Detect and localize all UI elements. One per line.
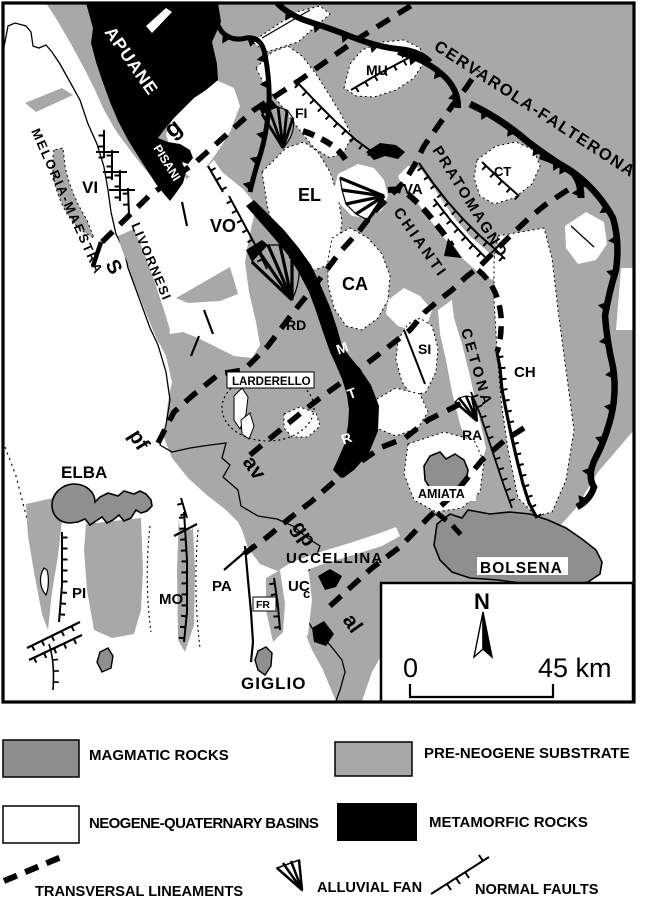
svg-text:FI: FI xyxy=(295,105,307,121)
svg-text:N: N xyxy=(474,589,490,614)
svg-text:AMIATA: AMIATA xyxy=(418,487,465,501)
svg-text:45 km: 45 km xyxy=(538,653,612,683)
svg-text:BOLSENA: BOLSENA xyxy=(480,560,563,577)
svg-text:LARDERELLO: LARDERELLO xyxy=(232,376,311,388)
svg-text:ELBA: ELBA xyxy=(61,463,107,482)
svg-text:MO: MO xyxy=(159,591,183,608)
svg-text:VA: VA xyxy=(403,181,423,198)
svg-text:CT: CT xyxy=(494,164,511,179)
svg-text:CH: CH xyxy=(514,364,536,381)
svg-text:PRE-NEOGENE SUBSTRATE: PRE-NEOGENE SUBSTRATE xyxy=(424,745,630,762)
svg-text:EL: EL xyxy=(298,185,321,205)
svg-text:PI: PI xyxy=(72,585,86,602)
svg-text:GIGLIO: GIGLIO xyxy=(241,674,307,693)
svg-text:MU: MU xyxy=(366,62,388,78)
svg-text:SI: SI xyxy=(418,341,431,357)
svg-text:CA: CA xyxy=(342,274,368,294)
svg-text:UCCELLINA: UCCELLINA xyxy=(286,550,383,567)
svg-text:c: c xyxy=(303,586,310,601)
svg-text:METAMORFIC ROCKS: METAMORFIC ROCKS xyxy=(429,814,588,831)
svg-text:PA: PA xyxy=(212,578,232,595)
svg-text:NORMAL FAULTS: NORMAL FAULTS xyxy=(475,882,599,898)
svg-text:RD: RD xyxy=(286,317,306,333)
svg-text:0: 0 xyxy=(403,653,418,683)
svg-text:TRANSVERSAL LINEAMENTS: TRANSVERSAL LINEAMENTS xyxy=(35,884,243,900)
svg-text:FR: FR xyxy=(256,599,270,611)
svg-text:VO: VO xyxy=(210,216,236,236)
svg-text:NEOGENE-QUATERNARY BASINS: NEOGENE-QUATERNARY BASINS xyxy=(89,815,319,832)
svg-text:ALLUVIAL FAN: ALLUVIAL FAN xyxy=(317,880,422,896)
svg-text:VI: VI xyxy=(82,178,98,197)
svg-text:RA: RA xyxy=(462,427,482,443)
svg-text:MAGMATIC ROCKS: MAGMATIC ROCKS xyxy=(89,747,229,764)
